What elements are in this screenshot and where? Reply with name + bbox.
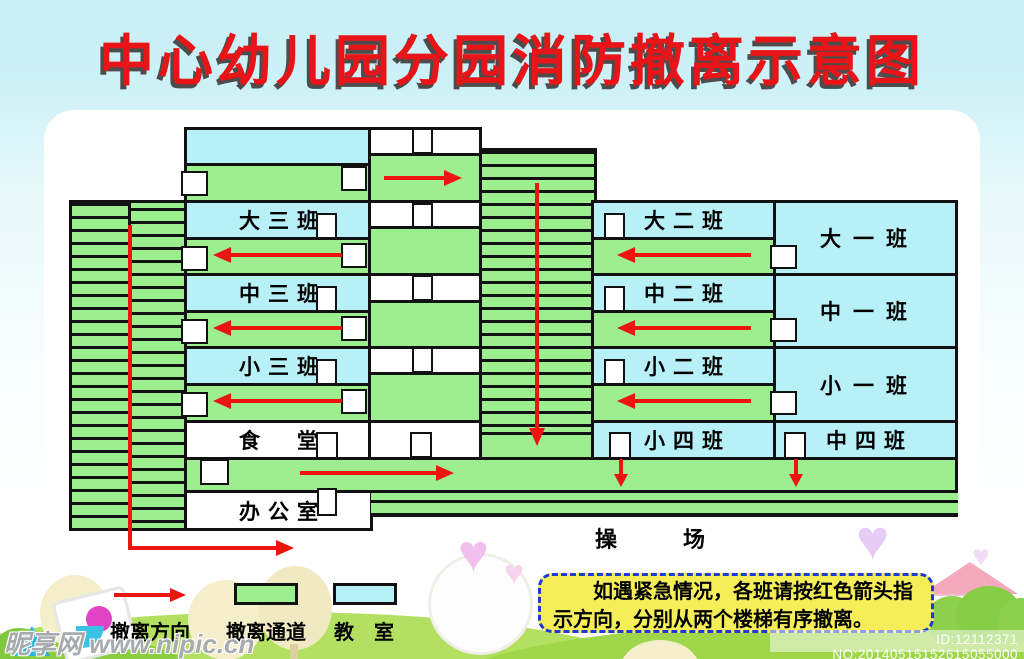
evac-arrow-shaft xyxy=(128,546,278,550)
heart-icon: ♥ xyxy=(504,556,524,590)
evac-arrow-shaft xyxy=(535,183,539,431)
room-xiao1ban: 小一班 xyxy=(773,346,958,423)
legend-arrow-right xyxy=(170,588,186,602)
poster-title: 中心幼儿园分园消防撤离示意图 xyxy=(0,16,1024,106)
evac-arrow-shaft xyxy=(231,326,342,330)
emergency-note: 如遇紧急情况，各班请按红色箭头指示方向，分别从两个楼梯有序撤离。 xyxy=(538,573,934,633)
door xyxy=(604,213,625,239)
door xyxy=(316,213,337,239)
door xyxy=(412,128,433,154)
door xyxy=(316,359,337,385)
playground-label: 操 场 xyxy=(540,522,760,550)
room-shitang: 食 堂 xyxy=(184,420,373,460)
room-bangongshi: 办公室 xyxy=(184,490,373,531)
room-xiao3ban: 小三班 xyxy=(184,346,373,386)
door xyxy=(412,203,433,228)
door xyxy=(341,166,367,191)
evac-arrow-shaft xyxy=(635,399,751,403)
door xyxy=(181,319,208,344)
corridor xyxy=(368,226,482,276)
door xyxy=(604,286,625,312)
corridor xyxy=(368,372,482,423)
door xyxy=(341,243,367,268)
evac-arrow-shaft xyxy=(231,399,342,403)
door xyxy=(604,359,625,385)
door xyxy=(609,432,631,459)
door xyxy=(770,318,797,342)
tree-trunk xyxy=(290,644,298,659)
evac-arrow-left xyxy=(213,247,231,263)
evac-arrow-down xyxy=(529,428,545,446)
stair-flight xyxy=(72,203,128,528)
room-zhong3ban: 中三班 xyxy=(184,273,373,313)
room-da3ban: 大三班 xyxy=(184,200,373,240)
door xyxy=(412,347,433,373)
evacuation-poster: 中心幼儿园分园消防撤离示意图 ♥ ♥ ♥ ♥ 大三班 中三班 小三班 食 堂 办… xyxy=(0,0,1024,659)
door xyxy=(181,246,208,271)
corridor xyxy=(368,300,482,349)
heart-icon: ♥ xyxy=(458,528,489,580)
evac-arrow-shaft xyxy=(384,176,446,180)
door xyxy=(770,391,797,415)
evac-arrow-shaft xyxy=(128,225,132,550)
evac-arrow-right xyxy=(276,540,294,556)
evac-arrow-down xyxy=(789,474,803,487)
door xyxy=(181,171,208,196)
room-da1ban: 大一班 xyxy=(773,200,958,276)
evac-arrow-shaft xyxy=(635,326,751,330)
legend-passage-swatch xyxy=(234,583,298,605)
door xyxy=(317,488,337,516)
building-steps xyxy=(371,490,958,517)
evac-arrow-down xyxy=(614,474,628,487)
door xyxy=(181,392,208,417)
room-zhong1ban: 中一班 xyxy=(773,273,958,349)
door xyxy=(412,275,433,301)
evac-arrow-right xyxy=(436,465,454,481)
evac-arrow-shaft xyxy=(635,253,751,257)
evac-arrow-left xyxy=(617,320,635,336)
heart-icon: ♥ xyxy=(856,512,889,568)
site-watermark: 昵享网 www.nipic.cn xyxy=(4,624,254,659)
evac-arrow-left xyxy=(213,393,231,409)
door xyxy=(410,432,432,458)
legend-arrow-shaft xyxy=(114,593,172,597)
room-unlabeled xyxy=(184,127,373,166)
evac-arrow-shaft xyxy=(231,253,342,257)
legend-classroom-label: 教 室 xyxy=(334,616,394,645)
evac-arrow-left xyxy=(617,247,635,263)
evac-arrow-shaft xyxy=(300,471,438,475)
stair-flight xyxy=(128,203,184,528)
door xyxy=(316,432,338,459)
legend-classroom-swatch xyxy=(333,583,397,605)
door xyxy=(770,245,797,269)
evac-arrow-left xyxy=(617,393,635,409)
evac-arrow-right xyxy=(444,170,462,186)
evac-arrow-left xyxy=(213,320,231,336)
door xyxy=(784,432,806,459)
door xyxy=(341,389,367,414)
emergency-note-text: 如遇紧急情况，各班请按红色箭头指示方向，分别从两个楼梯有序撤离。 xyxy=(553,579,921,634)
door xyxy=(341,316,367,341)
bottom-corridor xyxy=(184,457,958,493)
door xyxy=(316,286,337,312)
door xyxy=(200,459,229,485)
id-watermark: ID:12112371 NO:20140515152615055000 xyxy=(770,630,1024,652)
heart-icon: ♥ xyxy=(972,542,990,572)
